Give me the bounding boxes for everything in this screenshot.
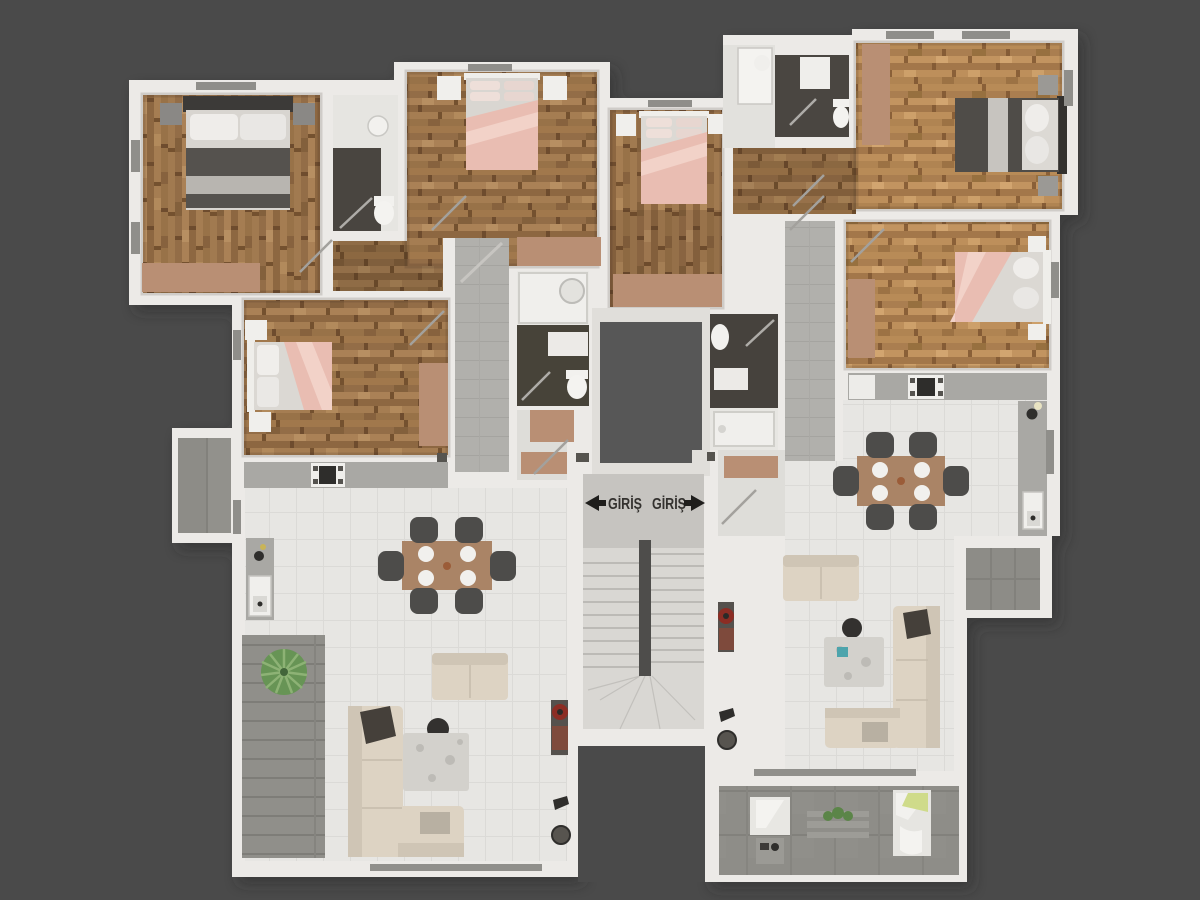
svg-text:GİRİŞ: GİRİŞ [608, 495, 642, 513]
svg-text:GİRİŞ: GİRİŞ [652, 495, 686, 513]
